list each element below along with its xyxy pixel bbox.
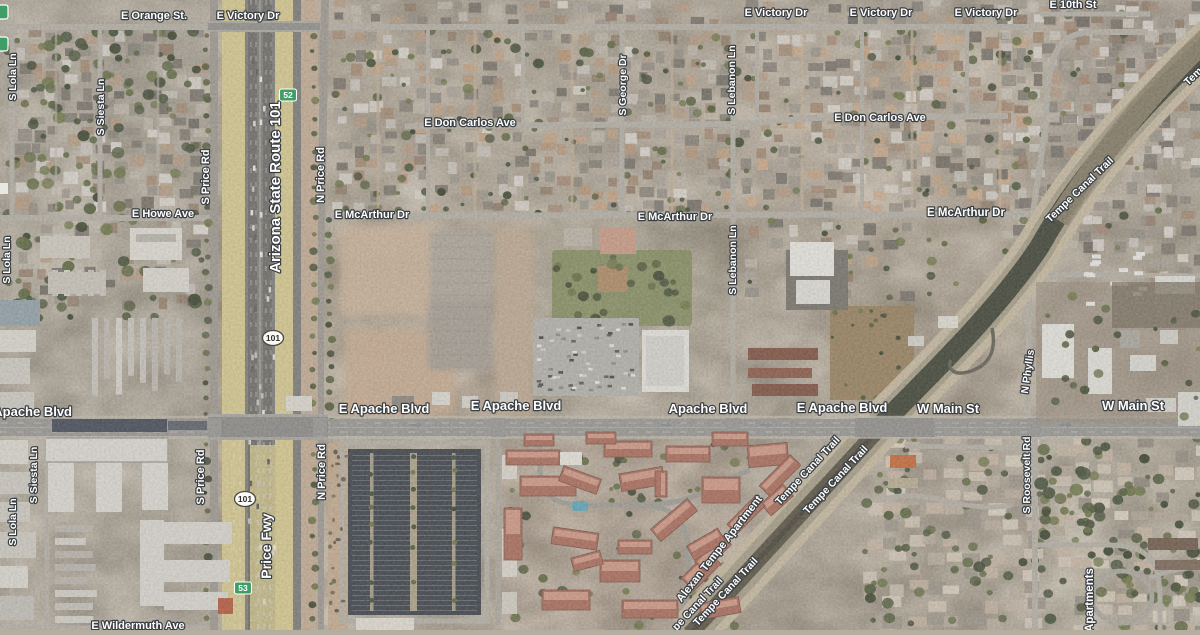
svg-text:E Wildermuth Ave: E Wildermuth Ave	[91, 620, 184, 630]
svg-text:E 10th St: E 10th St	[1049, 0, 1096, 11]
svg-text:E Apache Blvd: E Apache Blvd	[339, 401, 430, 416]
svg-text:Price Fwy: Price Fwy	[258, 513, 274, 579]
svg-text:E Orange St.: E Orange St.	[121, 10, 187, 22]
svg-text:S Lola Ln: S Lola Ln	[1, 236, 13, 283]
svg-text:101: 101	[266, 333, 280, 343]
svg-text:Apartments: Apartments	[1084, 568, 1096, 630]
svg-text:S Price Rd: S Price Rd	[195, 449, 207, 504]
svg-text:N Price Rd: N Price Rd	[316, 444, 328, 500]
svg-text:E McArthur Dr: E McArthur Dr	[638, 211, 713, 223]
svg-text:S Lola Ln: S Lola Ln	[7, 53, 19, 100]
svg-text:E McArthur Dr: E McArthur Dr	[335, 209, 410, 221]
svg-text:E Victory Dr: E Victory Dr	[745, 7, 808, 19]
svg-text:E Don Carlos Ave: E Don Carlos Ave	[424, 117, 516, 129]
svg-text:53: 53	[238, 583, 248, 593]
svg-text:E Don Carlos Ave: E Don Carlos Ave	[834, 112, 926, 124]
svg-text:E Victory Dr: E Victory Dr	[217, 10, 280, 22]
svg-text:101: 101	[238, 494, 252, 504]
svg-text:Arizona State Route 101: Arizona State Route 101	[267, 101, 284, 273]
svg-text:E Apache Blvd: E Apache Blvd	[0, 404, 72, 419]
svg-text:S Siesta Ln: S Siesta Ln	[95, 79, 107, 136]
svg-text:S Siesta Ln: S Siesta Ln	[28, 447, 40, 504]
svg-text:E Howe Ave: E Howe Ave	[132, 208, 194, 220]
svg-text:E Victory Dr: E Victory Dr	[850, 7, 913, 19]
svg-text:E Victory Dr: E Victory Dr	[955, 7, 1018, 19]
svg-text:S Roosevelt Rd: S Roosevelt Rd	[1021, 436, 1033, 513]
svg-text:Apache Blvd: Apache Blvd	[669, 401, 748, 416]
svg-text:S Lebanon Ln: S Lebanon Ln	[727, 225, 739, 294]
svg-text:E Apache Blvd: E Apache Blvd	[797, 400, 888, 415]
svg-text:S Lebanon Ln: S Lebanon Ln	[726, 45, 738, 114]
svg-text:E McArthur Dr: E McArthur Dr	[927, 207, 1005, 219]
svg-text:S Lola Ln: S Lola Ln	[7, 498, 19, 545]
svg-text:W Main St: W Main St	[1102, 398, 1165, 413]
svg-text:N Price Rd: N Price Rd	[315, 147, 327, 203]
svg-text:S Price Rd: S Price Rd	[200, 149, 212, 204]
svg-text:S George Dr: S George Dr	[617, 54, 629, 115]
svg-text:W Main St: W Main St	[917, 401, 980, 416]
svg-text:52: 52	[283, 90, 293, 100]
svg-text:E Apache Blvd: E Apache Blvd	[471, 398, 562, 413]
